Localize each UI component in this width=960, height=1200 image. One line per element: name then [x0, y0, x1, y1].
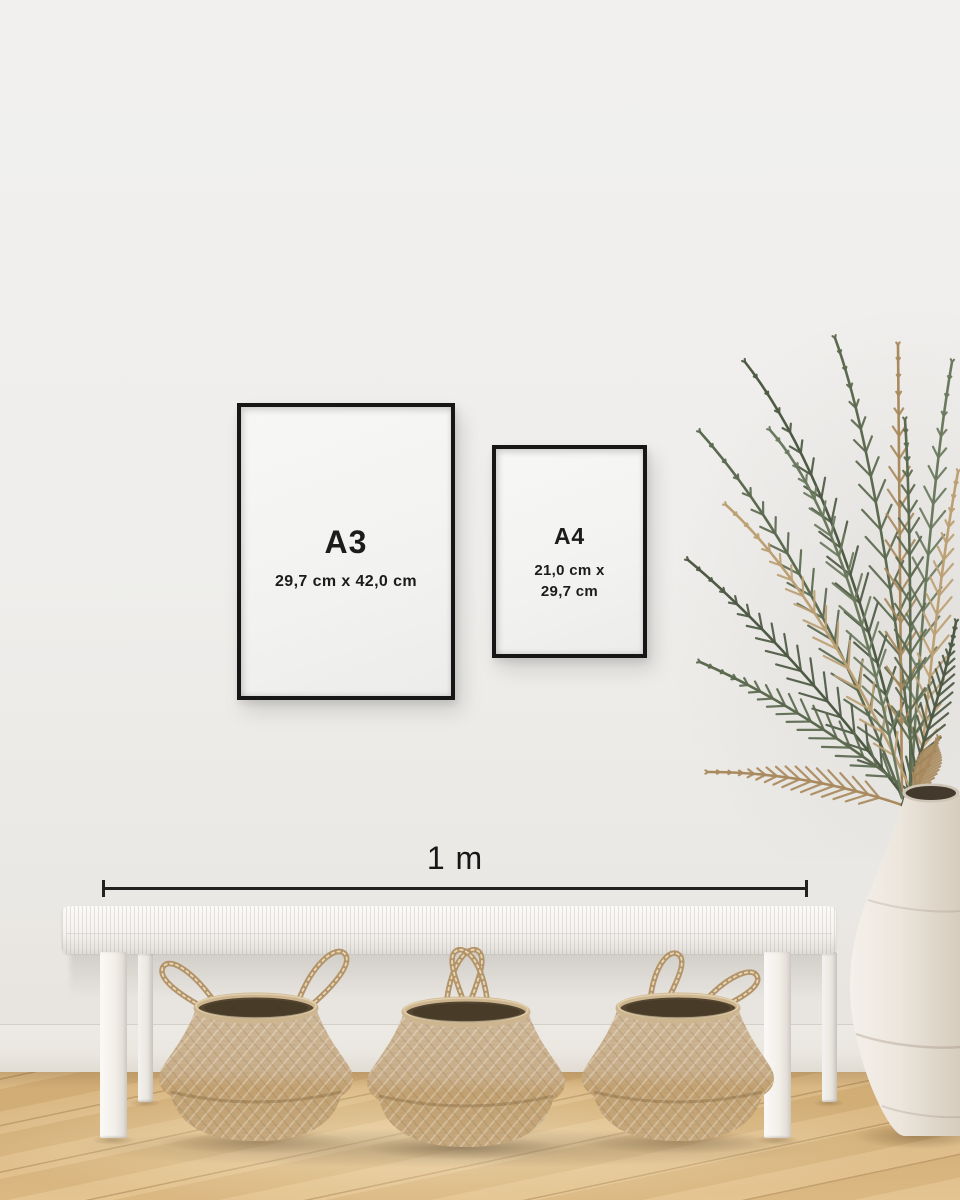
- bench-leg-back-left: [138, 952, 153, 1102]
- scale-measure-tick-left: [102, 880, 105, 897]
- scale-measure-tick-right: [805, 880, 808, 897]
- bench-seat: [62, 906, 836, 954]
- bench-seat-edge: [66, 933, 832, 934]
- room-mockup: A3 29,7 cm x 42,0 cm A4 21,0 cm x 29,7 c…: [0, 0, 960, 1200]
- bench-leg-back-right: [822, 952, 837, 1102]
- bench-shadow: [70, 954, 830, 1006]
- bench-leg-front-right: [764, 952, 791, 1138]
- frame-a4-size-label: A4: [554, 523, 585, 550]
- frame-a4-matte: A4 21,0 cm x 29,7 cm: [496, 449, 643, 654]
- frame-a4-dimensions-line2: 29,7 cm: [541, 583, 598, 600]
- scale-measure: 1 m: [102, 840, 808, 900]
- scale-measure-label: 1 m: [102, 840, 808, 877]
- frame-a3-matte: A3 29,7 cm x 42,0 cm: [241, 407, 451, 696]
- frame-a4: A4 21,0 cm x 29,7 cm: [492, 445, 647, 658]
- frame-a3: A3 29,7 cm x 42,0 cm: [237, 403, 455, 700]
- scale-measure-line: [102, 887, 808, 890]
- frame-a3-dimensions: 29,7 cm x 42,0 cm: [275, 573, 417, 591]
- frame-a3-size-label: A3: [325, 524, 368, 561]
- frame-a4-dimensions: 21,0 cm x 29,7 cm: [534, 560, 604, 602]
- frame-a4-dimensions-line1: 21,0 cm x: [534, 562, 604, 579]
- wall-shading: [660, 300, 960, 860]
- bench-leg-front-left: [100, 952, 127, 1138]
